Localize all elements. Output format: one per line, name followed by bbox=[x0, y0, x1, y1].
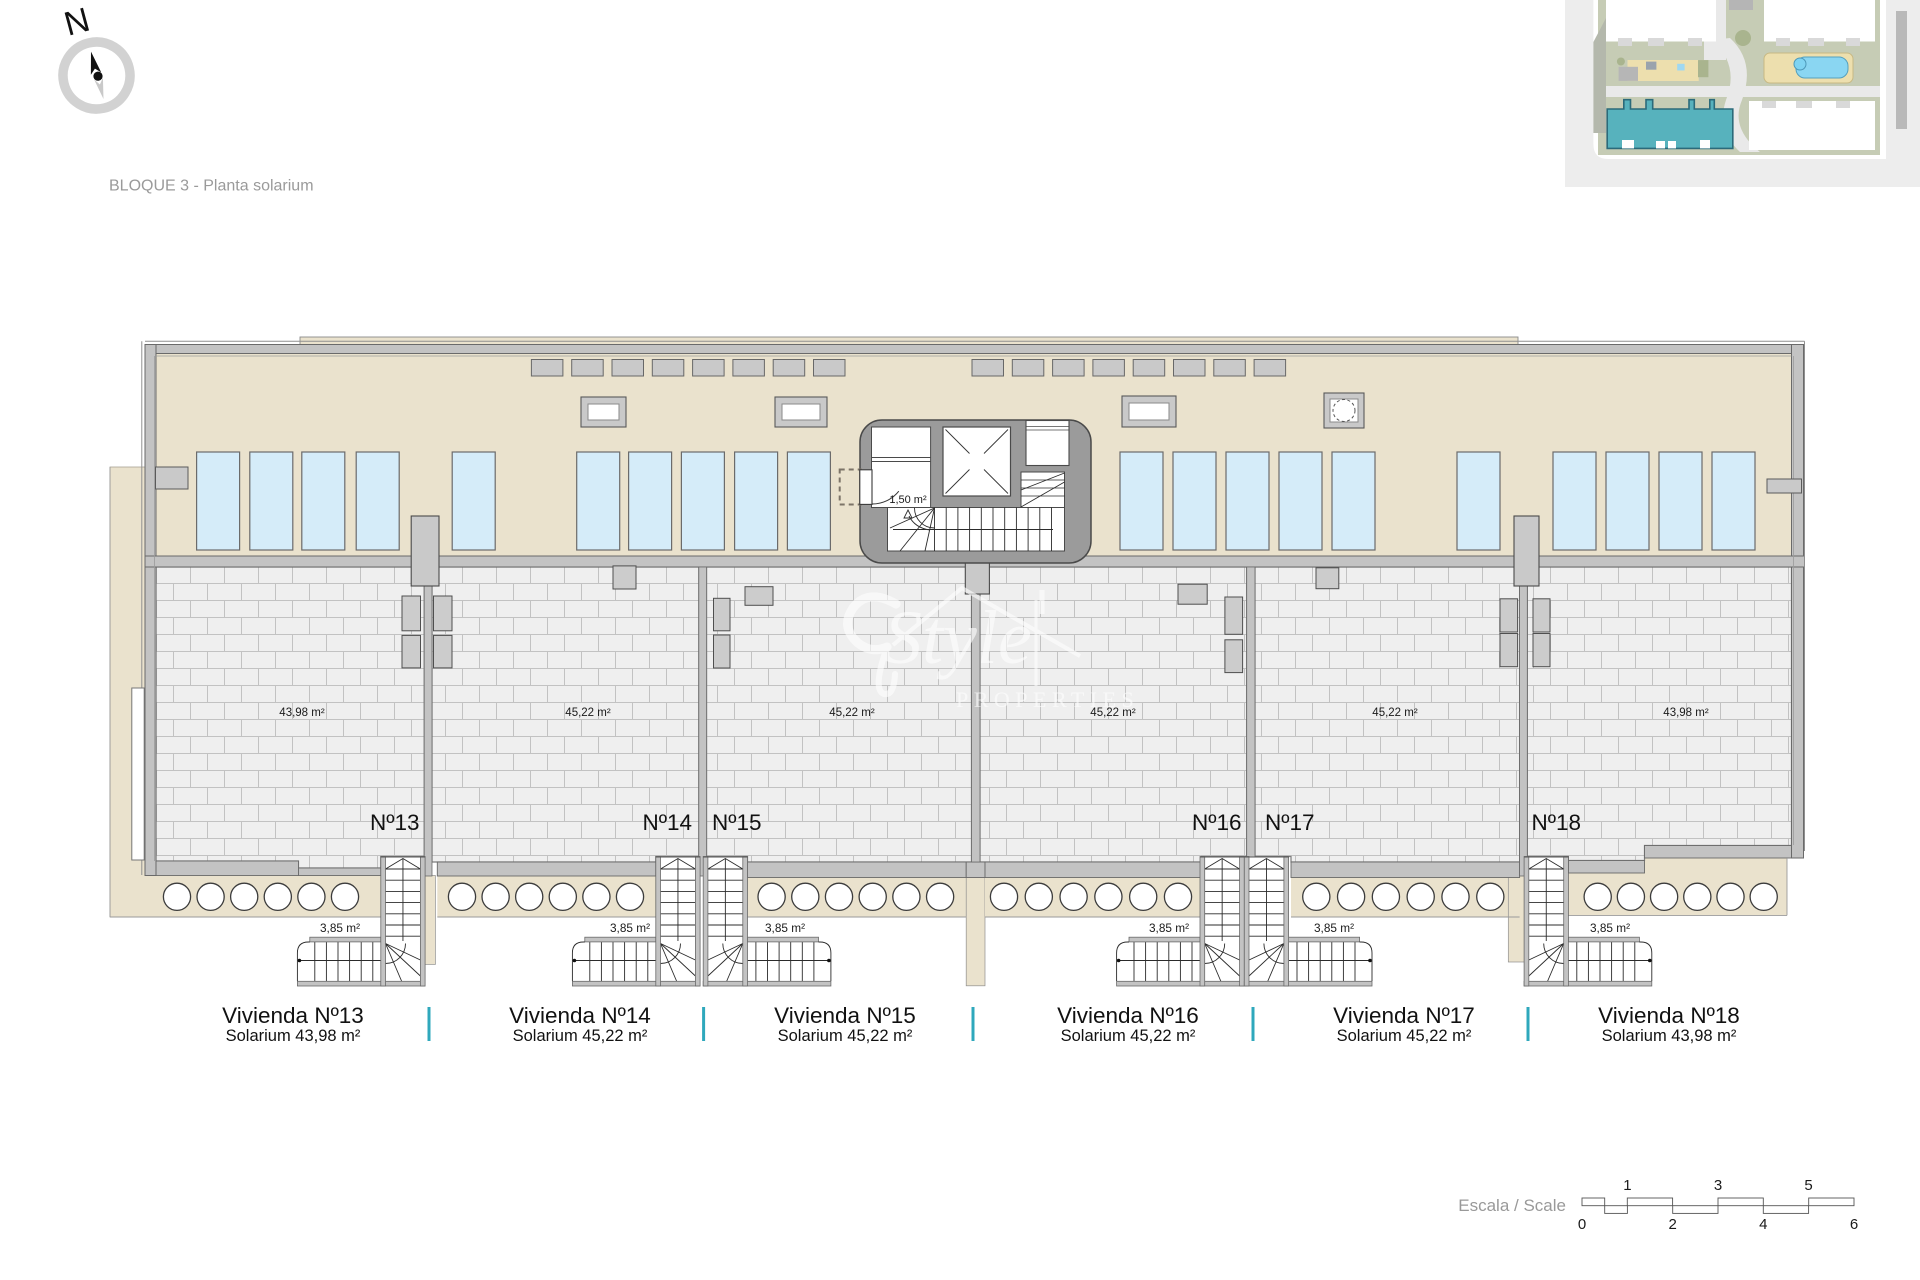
svg-text:Vivienda Nº15: Vivienda Nº15 bbox=[774, 1003, 916, 1028]
svg-text:Solarium 43,98 m²: Solarium 43,98 m² bbox=[226, 1027, 361, 1045]
svg-text:Solarium 45,22 m²: Solarium 45,22 m² bbox=[513, 1027, 648, 1045]
svg-text:Vivienda Nº17: Vivienda Nº17 bbox=[1333, 1003, 1475, 1028]
svg-text:3,85 m²: 3,85 m² bbox=[765, 921, 805, 935]
svg-text:Solarium 45,22 m²: Solarium 45,22 m² bbox=[1061, 1027, 1196, 1045]
svg-text:Vivienda Nº16: Vivienda Nº16 bbox=[1057, 1003, 1199, 1028]
svg-text:1: 1 bbox=[1623, 1177, 1631, 1194]
svg-text:3,85 m²: 3,85 m² bbox=[320, 921, 360, 935]
svg-text:45,22 m²: 45,22 m² bbox=[829, 707, 875, 719]
svg-text:43,98 m²: 43,98 m² bbox=[279, 707, 325, 719]
svg-text:3,85 m²: 3,85 m² bbox=[1590, 921, 1630, 935]
svg-text:5: 5 bbox=[1804, 1177, 1812, 1194]
svg-text:Vivienda Nº13: Vivienda Nº13 bbox=[222, 1003, 364, 1028]
svg-text:3: 3 bbox=[1714, 1177, 1722, 1194]
svg-text:43,98 m²: 43,98 m² bbox=[1663, 707, 1709, 719]
svg-text:Nº18: Nº18 bbox=[1532, 810, 1582, 835]
svg-text:Nº15: Nº15 bbox=[712, 810, 762, 835]
svg-text:Nº13: Nº13 bbox=[370, 810, 420, 835]
svg-text:Solarium 45,22 m²: Solarium 45,22 m² bbox=[778, 1027, 913, 1045]
svg-text:1,50 m²: 1,50 m² bbox=[889, 494, 927, 506]
svg-text:Solarium 43,98 m²: Solarium 43,98 m² bbox=[1602, 1027, 1737, 1045]
svg-text:Solarium 45,22 m²: Solarium 45,22 m² bbox=[1337, 1027, 1472, 1045]
svg-text:45,22 m²: 45,22 m² bbox=[1090, 707, 1136, 719]
svg-text:Nº14: Nº14 bbox=[643, 810, 693, 835]
svg-text:3,85 m²: 3,85 m² bbox=[610, 921, 650, 935]
svg-text:3,85 m²: 3,85 m² bbox=[1149, 921, 1189, 935]
svg-text:6: 6 bbox=[1850, 1216, 1858, 1233]
svg-text:4: 4 bbox=[1759, 1216, 1767, 1233]
svg-text:Style: Style bbox=[884, 596, 1032, 680]
svg-text:45,22 m²: 45,22 m² bbox=[565, 707, 611, 719]
svg-text:45,22 m²: 45,22 m² bbox=[1372, 707, 1418, 719]
svg-text:Nº16: Nº16 bbox=[1192, 810, 1242, 835]
svg-text:Vivienda Nº18: Vivienda Nº18 bbox=[1598, 1003, 1740, 1028]
svg-text:BLOQUE 3 - Planta solarium: BLOQUE 3 - Planta solarium bbox=[109, 178, 314, 195]
svg-text:Escala / Scale: Escala / Scale bbox=[1458, 1196, 1566, 1215]
svg-text:Vivienda Nº14: Vivienda Nº14 bbox=[509, 1003, 651, 1028]
svg-text:0: 0 bbox=[1578, 1216, 1586, 1233]
svg-text:Nº17: Nº17 bbox=[1265, 810, 1315, 835]
svg-text:3,85 m²: 3,85 m² bbox=[1314, 921, 1354, 935]
svg-text:2: 2 bbox=[1669, 1216, 1677, 1233]
